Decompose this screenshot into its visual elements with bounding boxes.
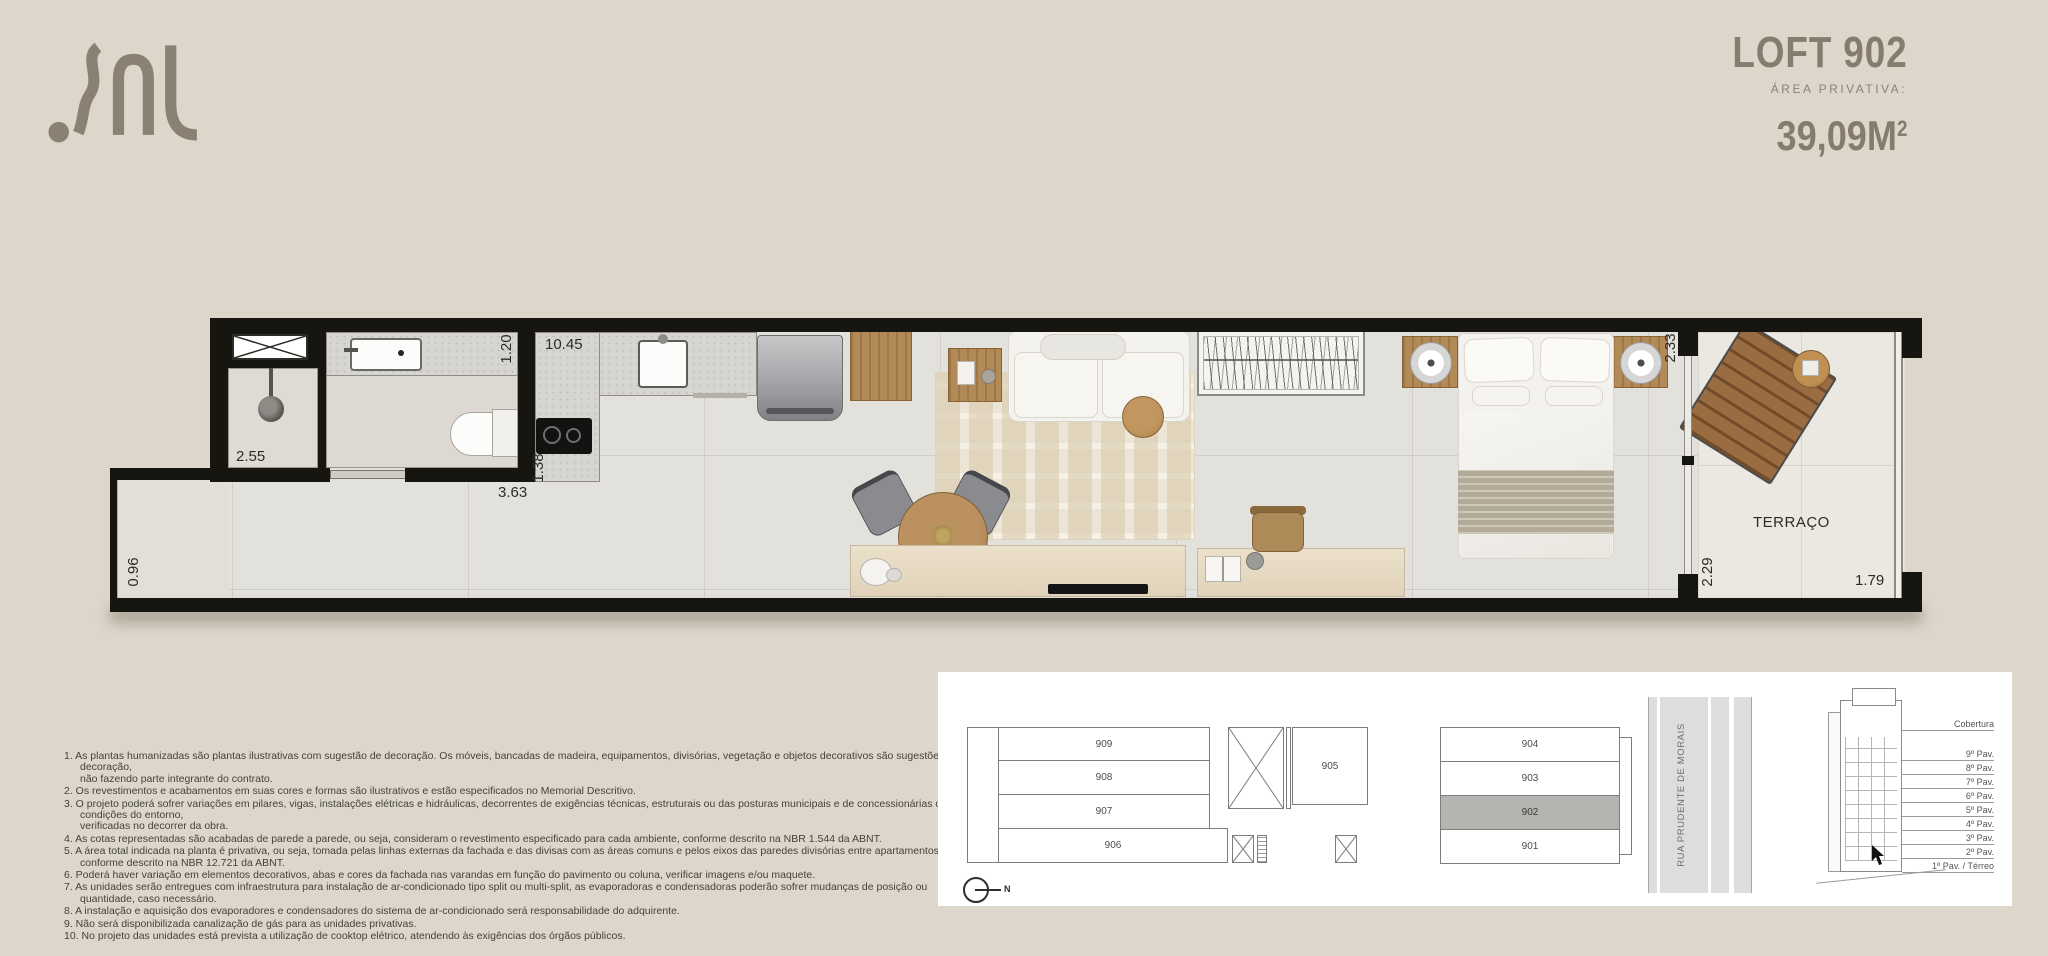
bath-faucet — [344, 348, 358, 352]
elevation-roof-volume — [1852, 688, 1896, 706]
street — [1648, 697, 1752, 893]
dim-bath-width: 1.20 — [498, 324, 514, 374]
street-name: RUA PRUDENTE DE MORAIS — [1676, 695, 1690, 895]
floor-leader-line — [1902, 760, 1994, 761]
page-title: LOFT 902 — [1732, 28, 1907, 78]
refrigerator-handle — [766, 408, 834, 414]
keyplan-stairs — [1257, 835, 1267, 863]
area-number: 39,09M — [1776, 112, 1896, 159]
keyplan-corridor — [967, 727, 999, 863]
north-arrow-line — [975, 889, 1001, 891]
nightstand — [1612, 336, 1668, 388]
table-lamp — [1410, 342, 1452, 384]
floor-label-7pav: 7º Pav. — [1874, 777, 1994, 787]
note-5: 5. A área total indicada na planta é pri… — [64, 846, 980, 869]
tv — [1048, 584, 1148, 594]
bath-sliding-door — [330, 470, 406, 479]
wall-partition-top — [1678, 332, 1698, 356]
wall-bottom — [110, 598, 1922, 612]
floor-leader-line — [1902, 858, 1994, 859]
toilet-tank — [492, 409, 518, 457]
shaft-cross-icon — [1233, 836, 1253, 862]
bed-pillow — [1539, 337, 1610, 383]
kitchen-sink — [638, 340, 688, 388]
dim-shower: 2.55 — [236, 448, 265, 465]
room-label-terrace: TERRAÇO — [1753, 514, 1830, 531]
wall-entry-top — [110, 468, 210, 480]
floor-leader-line — [1902, 774, 1994, 775]
dim-kitchen-depth: 1.38 — [530, 443, 546, 493]
north-label: N — [1004, 884, 1011, 894]
note-8: 8. A instalação e aquisição dos evaporad… — [64, 906, 980, 917]
wall-left-upper — [210, 318, 228, 482]
floor-label-cobertura: Cobertura — [1874, 719, 1994, 729]
floor-label-4pav: 4º Pav. — [1874, 819, 1994, 829]
unit-label: 908 — [1096, 772, 1113, 783]
unit-label: 906 — [1105, 840, 1122, 851]
kitchen-faucet — [658, 334, 668, 344]
terrace-glass-door — [1684, 356, 1692, 574]
shaft-cross-icon — [1336, 836, 1356, 862]
cursor-arrow-icon — [1868, 845, 1886, 867]
keyplan-unit-901: 901 — [1440, 829, 1620, 864]
keyplan-unit-908: 908 — [998, 760, 1210, 795]
keyplan-unit-903: 903 — [1440, 761, 1620, 796]
wall-shower-bath — [318, 332, 326, 468]
unit-label: 901 — [1522, 841, 1539, 852]
floor-leader-line — [1902, 872, 1994, 873]
side-table-vase — [981, 369, 996, 384]
sofa-cushion — [1014, 352, 1098, 418]
area-value: 39,09M2 — [1728, 112, 1907, 160]
keyplan-core-wall — [1286, 727, 1291, 809]
bed-pillow — [1463, 337, 1534, 383]
unit-label: 905 — [1322, 761, 1339, 772]
dim-terrace-width: 2.29 — [1699, 547, 1715, 597]
street-lane-line — [1729, 697, 1734, 893]
unit-label: 903 — [1522, 773, 1539, 784]
wall-bath-bottom-left — [210, 468, 330, 482]
unit-label: 907 — [1096, 806, 1113, 817]
dim-kitchen-length: 10.45 — [545, 336, 583, 353]
unit-label: 909 — [1096, 739, 1113, 750]
elevator-cross-icon — [1229, 728, 1283, 808]
floor-label-6pav: 6º Pav. — [1874, 791, 1994, 801]
wall-right-cap-top — [1902, 332, 1922, 358]
refrigerator — [757, 335, 843, 421]
door-mullion — [1682, 456, 1694, 465]
toilet-bowl — [450, 412, 498, 456]
note-9: 9. Não será disponibilizada canalização … — [64, 919, 980, 930]
keyplan-unit-902-highlighted: 902 — [1440, 795, 1620, 830]
floor-leader-line — [1902, 830, 1994, 831]
dim-terrace-depth: 1.79 — [1855, 572, 1884, 589]
table-lamp — [1620, 342, 1662, 384]
unit-label: 902 — [1522, 807, 1539, 818]
sofa-back-pillow — [1040, 334, 1126, 360]
keyplan-unit-904: 904 — [1440, 727, 1620, 762]
desk-decor — [1246, 552, 1264, 570]
street-lane-line — [1708, 697, 1711, 893]
pantry-cabinet — [850, 331, 912, 401]
unit-label: 904 — [1522, 739, 1539, 750]
decor-bowl-small — [886, 568, 902, 582]
brochure-page: LOFT 902 ÁREA PRIVATIVA: 39,09M2 — [0, 0, 2048, 956]
bath-sink — [350, 338, 422, 371]
dim-hall-width: 0.96 — [125, 547, 141, 597]
wardrobe-clothes — [1203, 336, 1359, 390]
wall-entry-left — [110, 468, 117, 612]
floor-leader-line — [1902, 730, 1994, 731]
keyplan-elevator — [1228, 727, 1284, 809]
floor-leader-line — [1902, 788, 1994, 789]
keyplan-shaft-small — [1335, 835, 1357, 863]
open-book — [1205, 556, 1241, 582]
terrace-railing — [1894, 332, 1903, 598]
nightstand — [1402, 336, 1458, 388]
floor-label-8pav: 8º Pav. — [1874, 763, 1994, 773]
note-4: 4. As cotas representadas são acabadas d… — [64, 834, 980, 845]
keyplan-unit-907: 907 — [998, 794, 1210, 829]
keyplan-shaft-small — [1232, 835, 1254, 863]
keyplan-unit-905: 905 — [1292, 727, 1368, 805]
keyplan-unit-909: 909 — [998, 727, 1210, 761]
floor-label-5pav: 5º Pav. — [1874, 805, 1994, 815]
note-1: 1. As plantas humanizadas são plantas il… — [64, 751, 980, 785]
wall-right-cap-bottom — [1902, 572, 1922, 598]
terrace-table-decor — [1802, 360, 1819, 376]
floor-leader-line — [1902, 816, 1994, 817]
side-table-decor — [957, 361, 975, 385]
floor-label-3pav: 3º Pav. — [1874, 833, 1994, 843]
bed-blanket — [1458, 470, 1614, 534]
note-3: 3. O projeto poderá sofrer variações em … — [64, 799, 980, 833]
cooktop-burner — [566, 428, 581, 443]
shaft-box — [232, 334, 308, 360]
cooktop-burner — [543, 426, 561, 444]
note-10: 10. No projeto das unidades está previst… — [64, 931, 980, 942]
floor-label-9pav: 9º Pav. — [1874, 749, 1994, 759]
note-7: 7. As unidades serão entregues com infra… — [64, 882, 980, 905]
wall-bath-bottom-right — [405, 468, 535, 482]
street-lane-line — [1657, 697, 1660, 893]
bath-sink-drain — [398, 350, 404, 356]
shaft-cross-icon — [234, 336, 306, 358]
note-6: 6. Poderá haver variação em elementos de… — [64, 870, 980, 881]
floor-leader-line — [1902, 844, 1994, 845]
table-centerpiece — [933, 525, 953, 547]
floor-label-2pav: 2º Pav. — [1874, 847, 1994, 857]
bed-pillow-small — [1545, 386, 1603, 406]
desk-chair — [1252, 512, 1304, 552]
shower-head-symbol — [258, 396, 284, 422]
keyplan-facade-strip — [1619, 737, 1632, 855]
round-side-table — [1122, 396, 1164, 438]
disclaimer-notes: 1. As plantas humanizadas são plantas il… — [64, 751, 980, 944]
area-label: ÁREA PRIVATIVA: — [1699, 82, 1908, 96]
sal-logo — [45, 36, 205, 148]
note-2: 2. Os revestimentos e acabamentos em sua… — [64, 786, 980, 797]
floor-leader-line — [1902, 802, 1994, 803]
dim-bedroom-width: 2.33 — [1662, 323, 1678, 373]
side-table — [948, 348, 1002, 402]
title-block: LOFT 902 ÁREA PRIVATIVA: 39,09M2 — [1699, 28, 1908, 160]
bed-pillow-small — [1472, 386, 1530, 406]
floor-label-terreo: 1º Pav. / Térreo — [1874, 861, 1994, 871]
area-superscript: 2 — [1896, 116, 1907, 141]
terrace-table — [1792, 350, 1830, 388]
counter-shelf-edge — [693, 393, 747, 398]
wardrobe — [1197, 330, 1365, 396]
wall-partition-bottom — [1678, 574, 1698, 598]
dim-bath-length: 3.63 — [498, 484, 527, 501]
keyplan-unit-906: 906 — [998, 828, 1228, 863]
